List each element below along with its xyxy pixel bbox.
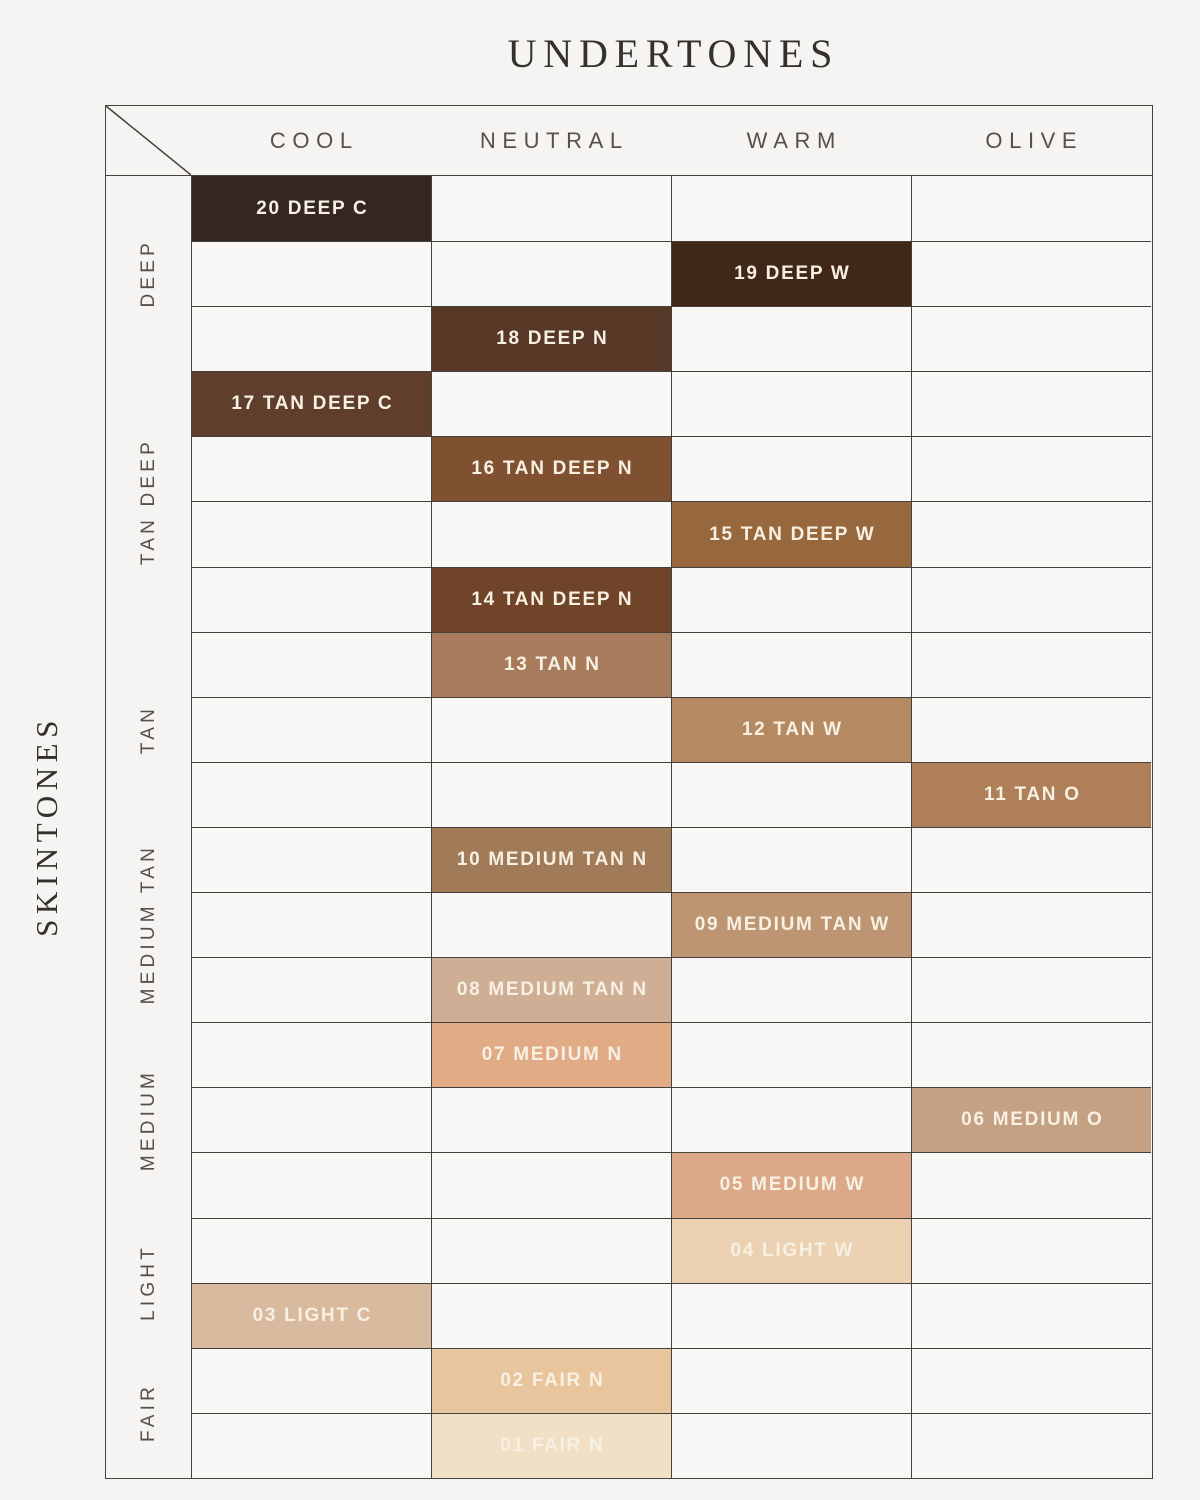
shade-label: 19 DEEP W bbox=[732, 263, 850, 285]
table-row: 12 TAN W bbox=[106, 697, 1152, 762]
shade-label: 07 MEDIUM N bbox=[480, 1044, 623, 1066]
shade-label: 17 TAN DEEP C bbox=[230, 393, 394, 415]
column-header-cool: COOL bbox=[191, 106, 431, 175]
corner-cell bbox=[106, 106, 191, 175]
shade-label: 18 DEEP N bbox=[495, 328, 609, 350]
undertones-axis-title: UNDERTONES bbox=[190, 30, 1150, 77]
table-row: 17 TAN DEEP C bbox=[106, 371, 1152, 436]
empty-cell bbox=[911, 1218, 1151, 1283]
empty-cell bbox=[431, 1087, 671, 1152]
skintone-group-label: TAN bbox=[106, 632, 191, 827]
table-row: 10 MEDIUM TAN N bbox=[106, 827, 1152, 892]
shade-cell: 15 TAN DEEP W bbox=[671, 501, 911, 566]
shade-label: 01 FAIR N bbox=[499, 1435, 605, 1457]
empty-cell bbox=[671, 1022, 911, 1087]
empty-cell bbox=[191, 697, 431, 762]
table-row: 18 DEEP N bbox=[106, 306, 1152, 371]
skintone-group-label: MEDIUM bbox=[106, 1022, 191, 1217]
empty-cell bbox=[671, 1348, 911, 1413]
empty-cell bbox=[431, 697, 671, 762]
empty-cell bbox=[671, 827, 911, 892]
empty-cell bbox=[431, 241, 671, 306]
table-row: 01 FAIR N bbox=[106, 1413, 1152, 1478]
skintone-group-label: FAIR bbox=[106, 1348, 191, 1478]
shade-label: 20 DEEP C bbox=[255, 198, 369, 220]
empty-cell bbox=[671, 567, 911, 632]
shade-label: 02 FAIR N bbox=[499, 1370, 605, 1392]
shade-label: 14 TAN DEEP N bbox=[470, 589, 634, 611]
shade-chart-page: UNDERTONES SKINTONES COOL NEUTRAL WARM O… bbox=[0, 0, 1200, 1500]
skintone-group-label-text: MEDIUM TAN bbox=[138, 844, 160, 1004]
empty-cell bbox=[911, 957, 1151, 1022]
table-row: 08 MEDIUM TAN N bbox=[106, 957, 1152, 1022]
shade-label: 09 MEDIUM TAN W bbox=[693, 914, 890, 936]
empty-cell bbox=[911, 176, 1151, 241]
empty-cell bbox=[191, 1022, 431, 1087]
skintone-group-label-text: TAN bbox=[138, 705, 160, 754]
empty-cell bbox=[671, 1413, 911, 1478]
shade-cell: 09 MEDIUM TAN W bbox=[671, 892, 911, 957]
shade-cell: 06 MEDIUM O bbox=[911, 1087, 1151, 1152]
empty-cell bbox=[431, 1283, 671, 1348]
empty-cell bbox=[911, 501, 1151, 566]
grid-header-row: COOL NEUTRAL WARM OLIVE bbox=[106, 106, 1152, 176]
shade-cell: 11 TAN O bbox=[911, 762, 1151, 827]
skintone-group-label: DEEP bbox=[106, 176, 191, 371]
table-row: 15 TAN DEEP W bbox=[106, 501, 1152, 566]
empty-cell bbox=[191, 892, 431, 957]
table-row: 11 TAN O bbox=[106, 762, 1152, 827]
empty-cell bbox=[191, 762, 431, 827]
skintone-group-label-text: LIGHT bbox=[138, 1244, 160, 1321]
empty-cell bbox=[911, 241, 1151, 306]
empty-cell bbox=[431, 501, 671, 566]
shade-label: 16 TAN DEEP N bbox=[470, 458, 634, 480]
empty-cell bbox=[671, 371, 911, 436]
shade-label: 15 TAN DEEP W bbox=[708, 524, 876, 546]
table-row: 14 TAN DEEP N bbox=[106, 567, 1152, 632]
empty-cell bbox=[911, 436, 1151, 501]
empty-cell bbox=[911, 1152, 1151, 1217]
empty-cell bbox=[671, 1283, 911, 1348]
skintone-group-label-text: FAIR bbox=[138, 1383, 160, 1442]
shade-cell: 14 TAN DEEP N bbox=[431, 567, 671, 632]
empty-cell bbox=[911, 697, 1151, 762]
empty-cell bbox=[191, 1413, 431, 1478]
shade-cell: 13 TAN N bbox=[431, 632, 671, 697]
shade-label: 11 TAN O bbox=[982, 784, 1080, 806]
shade-label: 06 MEDIUM O bbox=[959, 1109, 1103, 1131]
empty-cell bbox=[431, 1218, 671, 1283]
shade-label: 13 TAN N bbox=[502, 654, 600, 676]
empty-cell bbox=[911, 306, 1151, 371]
empty-cell bbox=[911, 1413, 1151, 1478]
shade-grid: COOL NEUTRAL WARM OLIVE 20 DEEP C19 DEEP… bbox=[105, 105, 1153, 1479]
skintone-group-label-text: TAN DEEP bbox=[138, 438, 160, 565]
shade-cell: 12 TAN W bbox=[671, 697, 911, 762]
empty-cell bbox=[911, 371, 1151, 436]
grid-body: 20 DEEP C19 DEEP W18 DEEP N17 TAN DEEP C… bbox=[106, 176, 1152, 1478]
empty-cell bbox=[671, 306, 911, 371]
shade-cell: 05 MEDIUM W bbox=[671, 1152, 911, 1217]
shade-label: 08 MEDIUM TAN N bbox=[455, 979, 648, 1001]
empty-cell bbox=[191, 1348, 431, 1413]
shade-label: 04 LIGHT W bbox=[729, 1240, 854, 1262]
table-row: 03 LIGHT C bbox=[106, 1283, 1152, 1348]
shade-cell: 17 TAN DEEP C bbox=[191, 371, 431, 436]
empty-cell bbox=[431, 176, 671, 241]
empty-cell bbox=[431, 762, 671, 827]
shade-label: 05 MEDIUM W bbox=[718, 1174, 865, 1196]
empty-cell bbox=[911, 567, 1151, 632]
empty-cell bbox=[191, 1152, 431, 1217]
empty-cell bbox=[671, 436, 911, 501]
empty-cell bbox=[671, 176, 911, 241]
diagonal-divider-line bbox=[106, 106, 191, 175]
empty-cell bbox=[191, 1218, 431, 1283]
empty-cell bbox=[911, 892, 1151, 957]
skintone-group-label: MEDIUM TAN bbox=[106, 827, 191, 1022]
empty-cell bbox=[671, 762, 911, 827]
skintones-axis-title-wrap: SKINTONES bbox=[14, 175, 80, 1477]
table-row: 06 MEDIUM O bbox=[106, 1087, 1152, 1152]
empty-cell bbox=[191, 436, 431, 501]
shade-cell: 16 TAN DEEP N bbox=[431, 436, 671, 501]
shade-cell: 01 FAIR N bbox=[431, 1413, 671, 1478]
shade-label: 12 TAN W bbox=[740, 719, 843, 741]
empty-cell bbox=[671, 957, 911, 1022]
empty-cell bbox=[911, 1348, 1151, 1413]
shade-label: 10 MEDIUM TAN N bbox=[455, 849, 648, 871]
empty-cell bbox=[911, 632, 1151, 697]
empty-cell bbox=[911, 827, 1151, 892]
shade-cell: 04 LIGHT W bbox=[671, 1218, 911, 1283]
empty-cell bbox=[191, 306, 431, 371]
empty-cell bbox=[191, 567, 431, 632]
empty-cell bbox=[191, 957, 431, 1022]
empty-cell bbox=[671, 1087, 911, 1152]
column-header-warm: WARM bbox=[671, 106, 911, 175]
shade-cell: 20 DEEP C bbox=[191, 176, 431, 241]
skintones-axis-title: SKINTONES bbox=[29, 715, 65, 937]
skintone-group-label-text: DEEP bbox=[138, 239, 160, 307]
shade-cell: 10 MEDIUM TAN N bbox=[431, 827, 671, 892]
shade-cell: 07 MEDIUM N bbox=[431, 1022, 671, 1087]
table-row: 04 LIGHT W bbox=[106, 1218, 1152, 1283]
empty-cell bbox=[431, 371, 671, 436]
table-row: 07 MEDIUM N bbox=[106, 1022, 1152, 1087]
empty-cell bbox=[191, 501, 431, 566]
skintone-group-label: LIGHT bbox=[106, 1218, 191, 1348]
table-row: 19 DEEP W bbox=[106, 241, 1152, 306]
shade-cell: 18 DEEP N bbox=[431, 306, 671, 371]
empty-cell bbox=[671, 632, 911, 697]
table-row: 20 DEEP C bbox=[106, 176, 1152, 241]
shade-cell: 02 FAIR N bbox=[431, 1348, 671, 1413]
shade-label: 03 LIGHT C bbox=[251, 1305, 372, 1327]
empty-cell bbox=[431, 1152, 671, 1217]
table-row: 16 TAN DEEP N bbox=[106, 436, 1152, 501]
table-row: 09 MEDIUM TAN W bbox=[106, 892, 1152, 957]
table-row: 05 MEDIUM W bbox=[106, 1152, 1152, 1217]
column-header-neutral: NEUTRAL bbox=[431, 106, 671, 175]
empty-cell bbox=[191, 632, 431, 697]
column-header-olive: OLIVE bbox=[911, 106, 1151, 175]
shade-cell: 03 LIGHT C bbox=[191, 1283, 431, 1348]
table-row: 02 FAIR N bbox=[106, 1348, 1152, 1413]
empty-cell bbox=[431, 892, 671, 957]
table-row: 13 TAN N bbox=[106, 632, 1152, 697]
skintone-group-label-text: MEDIUM bbox=[138, 1069, 160, 1171]
empty-cell bbox=[191, 1087, 431, 1152]
empty-cell bbox=[191, 827, 431, 892]
empty-cell bbox=[911, 1283, 1151, 1348]
shade-cell: 08 MEDIUM TAN N bbox=[431, 957, 671, 1022]
shade-cell: 19 DEEP W bbox=[671, 241, 911, 306]
empty-cell bbox=[191, 241, 431, 306]
skintone-group-label: TAN DEEP bbox=[106, 371, 191, 631]
empty-cell bbox=[911, 1022, 1151, 1087]
